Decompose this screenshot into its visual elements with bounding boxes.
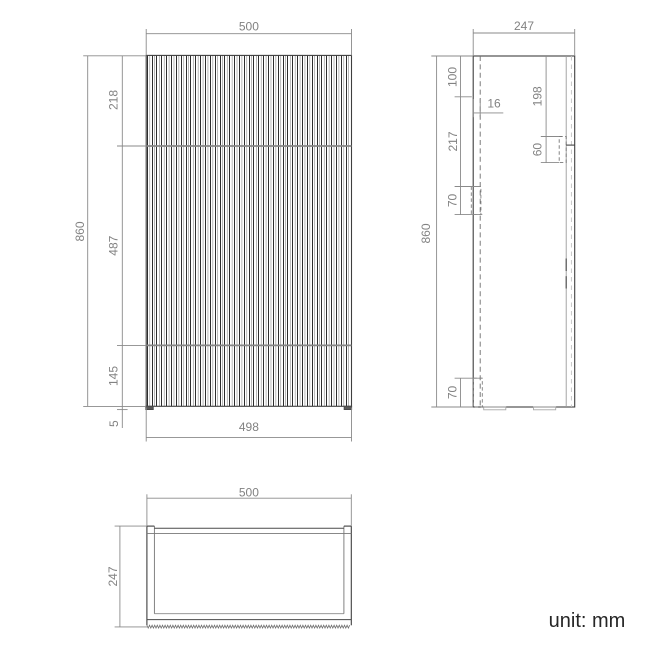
svg-text:100: 100 bbox=[445, 67, 459, 87]
svg-text:60: 60 bbox=[530, 143, 544, 157]
svg-text:487: 487 bbox=[107, 235, 121, 255]
svg-text:16: 16 bbox=[487, 96, 501, 110]
svg-text:500: 500 bbox=[239, 486, 259, 500]
svg-text:498: 498 bbox=[239, 420, 259, 434]
svg-text:5: 5 bbox=[107, 420, 121, 427]
svg-text:70: 70 bbox=[445, 386, 459, 400]
svg-text:70: 70 bbox=[445, 194, 459, 208]
svg-text:145: 145 bbox=[107, 366, 121, 386]
svg-text:217: 217 bbox=[446, 131, 460, 151]
svg-text:247: 247 bbox=[106, 566, 120, 586]
svg-text:247: 247 bbox=[514, 19, 534, 33]
svg-text:218: 218 bbox=[107, 90, 121, 110]
svg-text:860: 860 bbox=[73, 221, 87, 241]
svg-text:unit: mm: unit: mm bbox=[549, 610, 626, 632]
svg-text:860: 860 bbox=[419, 223, 433, 243]
svg-text:198: 198 bbox=[530, 86, 544, 106]
svg-text:500: 500 bbox=[239, 20, 259, 34]
